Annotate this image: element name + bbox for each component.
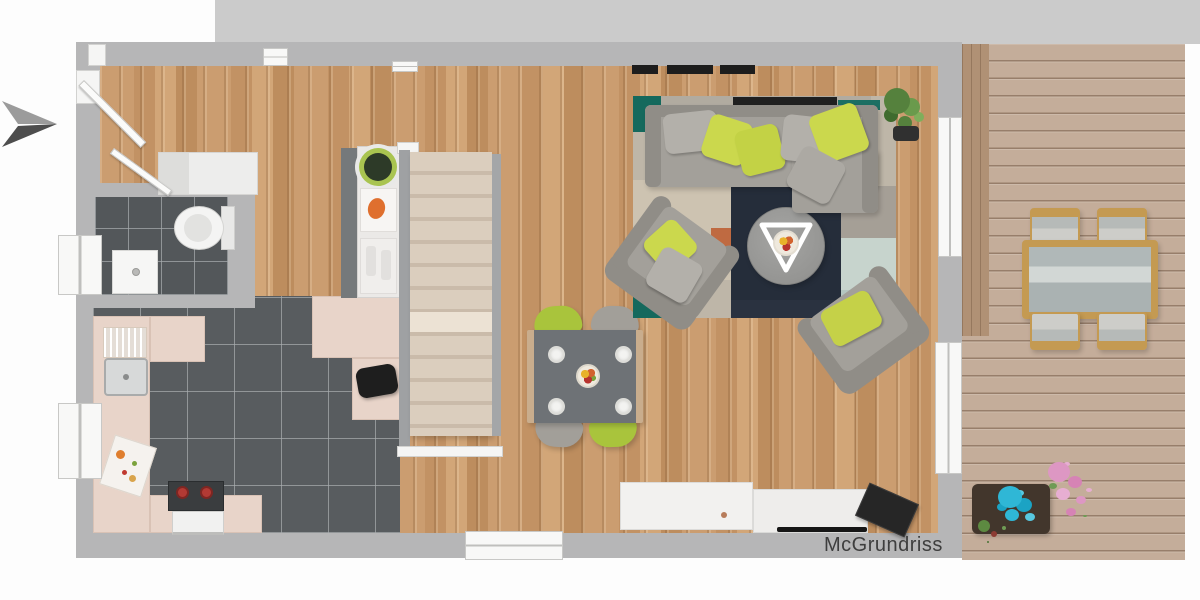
soundbar (777, 527, 867, 532)
window (392, 61, 418, 72)
high-window (720, 65, 755, 74)
blue-flowers (998, 486, 1022, 508)
food-items (116, 450, 125, 459)
watermark: McGrundriss (824, 534, 943, 557)
drawer-knob (721, 512, 727, 518)
faucet (132, 268, 140, 276)
kitchen-counter-top (150, 316, 205, 362)
window (58, 235, 102, 295)
high-window (632, 65, 658, 74)
stove-burner (176, 486, 189, 499)
tv-sideboard (620, 482, 753, 530)
terrace-door (935, 342, 962, 474)
dish-rack (103, 327, 147, 358)
outdoor-chair (1097, 312, 1147, 350)
glasses (366, 246, 376, 276)
stair-rail-left (399, 150, 410, 450)
potted-plant (884, 88, 910, 114)
high-window (667, 65, 713, 74)
snack-bowl (773, 230, 799, 256)
plate (548, 346, 565, 363)
kitchen-cabinet-block (312, 296, 401, 358)
stair-bottom-cap (397, 446, 503, 457)
window (263, 48, 288, 66)
staircase (410, 152, 492, 436)
hall-wardrobe (158, 152, 258, 195)
stair-landing (410, 312, 492, 332)
green-sprigs (978, 520, 990, 532)
fruit-bowl (576, 364, 600, 388)
kitchen-sink-drain (123, 374, 129, 380)
plate (615, 346, 632, 363)
plate (615, 398, 632, 415)
pink-flowers (1048, 462, 1070, 482)
floor-plan-render: McGrundriss (0, 0, 1200, 600)
window (938, 117, 962, 257)
toilet-bowl-inner (184, 214, 212, 242)
oven (172, 511, 224, 535)
background-band (215, 0, 1200, 44)
stair-rail-right (492, 154, 501, 436)
outdoor-chair (1030, 312, 1080, 350)
sofa-armrest (862, 105, 878, 213)
door-sidelight (88, 44, 106, 66)
deck-border-board (962, 44, 989, 336)
north-arrow-icon (0, 95, 60, 151)
plate (548, 398, 565, 415)
window (465, 531, 563, 560)
plant-pot (893, 126, 919, 141)
stove-burner (200, 486, 213, 499)
window (58, 403, 102, 479)
outdoor-table (1022, 240, 1158, 319)
sofa-armrest (645, 105, 661, 187)
kitchen-divider-wall (341, 148, 357, 298)
green-plate (364, 153, 392, 181)
